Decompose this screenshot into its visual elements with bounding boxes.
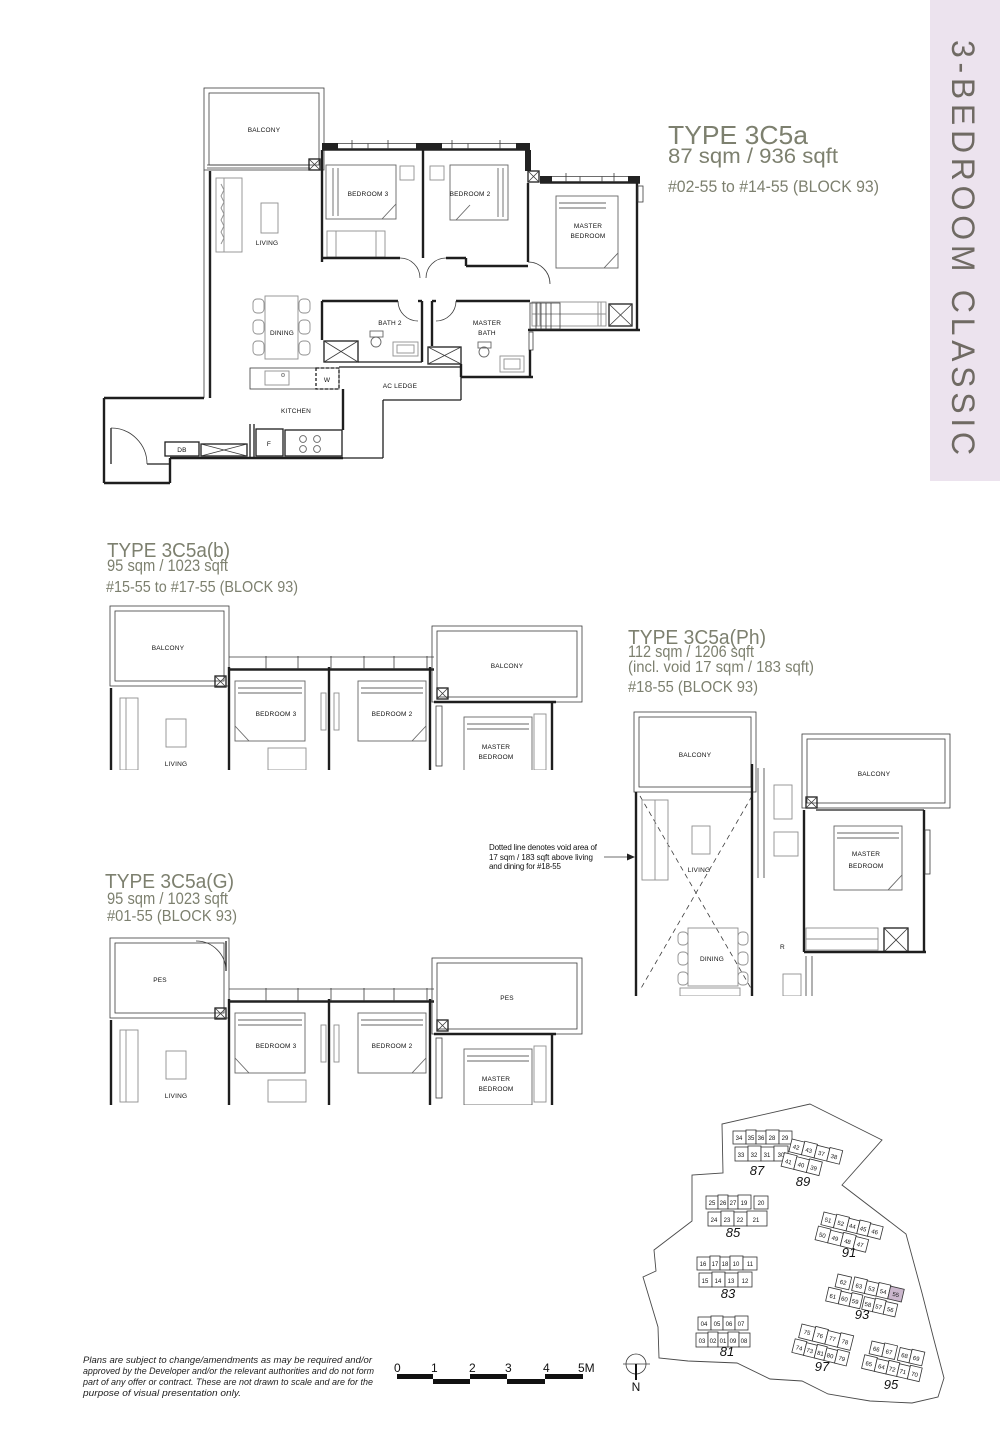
svg-text:BALCONY: BALCONY [152, 645, 185, 652]
svg-text:12: 12 [742, 1279, 749, 1285]
svg-text:BALCONY: BALCONY [679, 752, 712, 759]
svg-text:BEDROOM 3: BEDROOM 3 [256, 1043, 297, 1050]
svg-text:BEDROOM: BEDROOM [571, 233, 606, 240]
svg-text:21: 21 [753, 1218, 760, 1224]
svg-text:87 sqm / 936 sqft: 87 sqm / 936 sqft [668, 145, 838, 168]
svg-text:04: 04 [701, 1322, 708, 1328]
svg-text:93: 93 [855, 1307, 870, 1322]
svg-text:BEDROOM: BEDROOM [479, 1086, 514, 1093]
svg-text:91: 91 [842, 1245, 856, 1260]
svg-text:#15-55 to #17-55 (BLOCK 93): #15-55 to #17-55 (BLOCK 93) [106, 579, 298, 596]
svg-text:PES: PES [500, 995, 514, 1002]
svg-text:#01-55 (BLOCK 93): #01-55 (BLOCK 93) [107, 908, 237, 925]
svg-text:LIVING: LIVING [688, 867, 711, 874]
svg-text:BEDROOM 2: BEDROOM 2 [372, 1043, 413, 1050]
svg-text:KITCHEN: KITCHEN [281, 408, 311, 415]
svg-text:14: 14 [715, 1279, 722, 1285]
svg-text:0: 0 [394, 1361, 401, 1375]
svg-text:83: 83 [721, 1286, 736, 1301]
svg-text:F: F [267, 441, 271, 448]
svg-text:31: 31 [764, 1153, 771, 1159]
svg-text:07: 07 [738, 1322, 745, 1328]
svg-text:95: 95 [884, 1377, 899, 1392]
svg-text:97: 97 [815, 1359, 830, 1374]
svg-text:N: N [632, 1380, 641, 1394]
svg-text:11: 11 [747, 1262, 754, 1268]
svg-text:and dining for #18-55: and dining for #18-55 [489, 862, 562, 871]
svg-text:4: 4 [543, 1361, 550, 1375]
svg-text:81: 81 [720, 1344, 734, 1359]
svg-text:29: 29 [782, 1136, 789, 1142]
svg-text:PES: PES [153, 977, 167, 984]
svg-text:BALCONY: BALCONY [248, 127, 281, 134]
svg-text:BEDROOM 2: BEDROOM 2 [372, 711, 413, 718]
svg-text:1: 1 [431, 1361, 438, 1375]
svg-text:AC LEDGE: AC LEDGE [383, 383, 418, 390]
svg-text:95 sqm / 1023 sqft: 95 sqm / 1023 sqft [107, 557, 228, 575]
svg-text:DINING: DINING [270, 330, 294, 337]
svg-text:27: 27 [730, 1201, 737, 1207]
svg-text:BEDROOM 2: BEDROOM 2 [450, 191, 491, 198]
svg-text:MASTER: MASTER [852, 851, 880, 858]
svg-text:20: 20 [758, 1201, 765, 1207]
svg-text:26: 26 [720, 1201, 727, 1207]
svg-text:10: 10 [733, 1262, 740, 1268]
svg-text:85: 85 [726, 1225, 741, 1240]
svg-text:3: 3 [505, 1361, 512, 1375]
svg-text:purpose of visual presentation: purpose of visual presentation only. [82, 1388, 241, 1399]
svg-text:05: 05 [714, 1322, 721, 1328]
svg-text:02: 02 [710, 1339, 717, 1345]
svg-text:BEDROOM 3: BEDROOM 3 [348, 191, 389, 198]
svg-text:22: 22 [737, 1218, 744, 1224]
svg-text:#02-55 to #14-55 (BLOCK 93): #02-55 to #14-55 (BLOCK 93) [668, 177, 879, 196]
svg-text:BATH 2: BATH 2 [378, 320, 402, 327]
svg-text:36: 36 [758, 1136, 765, 1142]
svg-text:BALCONY: BALCONY [491, 663, 524, 670]
svg-text:28: 28 [769, 1136, 776, 1142]
svg-text:BALCONY: BALCONY [858, 771, 891, 778]
svg-text:R: R [780, 944, 785, 951]
svg-text:87: 87 [750, 1163, 765, 1178]
svg-text:08: 08 [741, 1339, 748, 1345]
svg-text:19: 19 [741, 1201, 748, 1207]
svg-text:DB: DB [177, 447, 186, 454]
svg-text:95 sqm / 1023 sqft: 95 sqm / 1023 sqft [107, 890, 228, 908]
svg-text:25: 25 [709, 1201, 716, 1207]
svg-text:BEDROOM 3: BEDROOM 3 [256, 711, 297, 718]
svg-text:Dotted line denotes void area: Dotted line denotes void area of [489, 843, 598, 852]
svg-text:33: 33 [738, 1153, 745, 1159]
svg-text:16: 16 [700, 1262, 707, 1268]
svg-text:23: 23 [724, 1218, 731, 1224]
svg-text:(incl. void 17 sqm / 183 sqft): (incl. void 17 sqm / 183 sqft) [628, 659, 814, 676]
svg-text:MASTER: MASTER [574, 223, 602, 230]
svg-text:Plans are subject to change/: Plans are subject to change/amendments a… [83, 1355, 373, 1366]
svg-text:part of any offer or contract.: part of any offer or contract. These are… [82, 1377, 373, 1388]
svg-text:W: W [324, 377, 331, 384]
svg-text:#18-55 (BLOCK 93): #18-55 (BLOCK 93) [628, 679, 758, 696]
svg-text:2: 2 [469, 1361, 476, 1375]
svg-text:BEDROOM: BEDROOM [479, 754, 514, 761]
svg-text:24: 24 [711, 1218, 718, 1224]
svg-text:35: 35 [748, 1136, 755, 1142]
svg-text:17 sqm / 183 sqft above livin: 17 sqm / 183 sqft above living [489, 853, 593, 862]
svg-text:89: 89 [796, 1174, 810, 1189]
svg-text:BATH: BATH [478, 330, 496, 337]
svg-text:06: 06 [726, 1322, 733, 1328]
svg-text:MASTER: MASTER [482, 744, 510, 751]
svg-text:LIVING: LIVING [165, 1093, 188, 1100]
svg-text:LIVING: LIVING [165, 761, 188, 768]
svg-text:18: 18 [722, 1262, 729, 1268]
svg-text:15: 15 [702, 1279, 709, 1285]
svg-text:BEDROOM: BEDROOM [849, 863, 884, 870]
svg-text:03: 03 [699, 1339, 706, 1345]
svg-text:DINING: DINING [700, 956, 724, 963]
svg-text:17: 17 [712, 1262, 719, 1268]
svg-text:32: 32 [751, 1153, 758, 1159]
svg-text:MASTER: MASTER [482, 1076, 510, 1083]
svg-text:13: 13 [728, 1279, 735, 1285]
svg-text:approved by the Developer and/: approved by the Developer and/or the rel… [83, 1366, 374, 1377]
svg-text:LIVING: LIVING [256, 240, 279, 247]
svg-text:34: 34 [736, 1136, 743, 1142]
svg-text:5M: 5M [578, 1361, 595, 1375]
svg-text:MASTER: MASTER [473, 320, 501, 327]
